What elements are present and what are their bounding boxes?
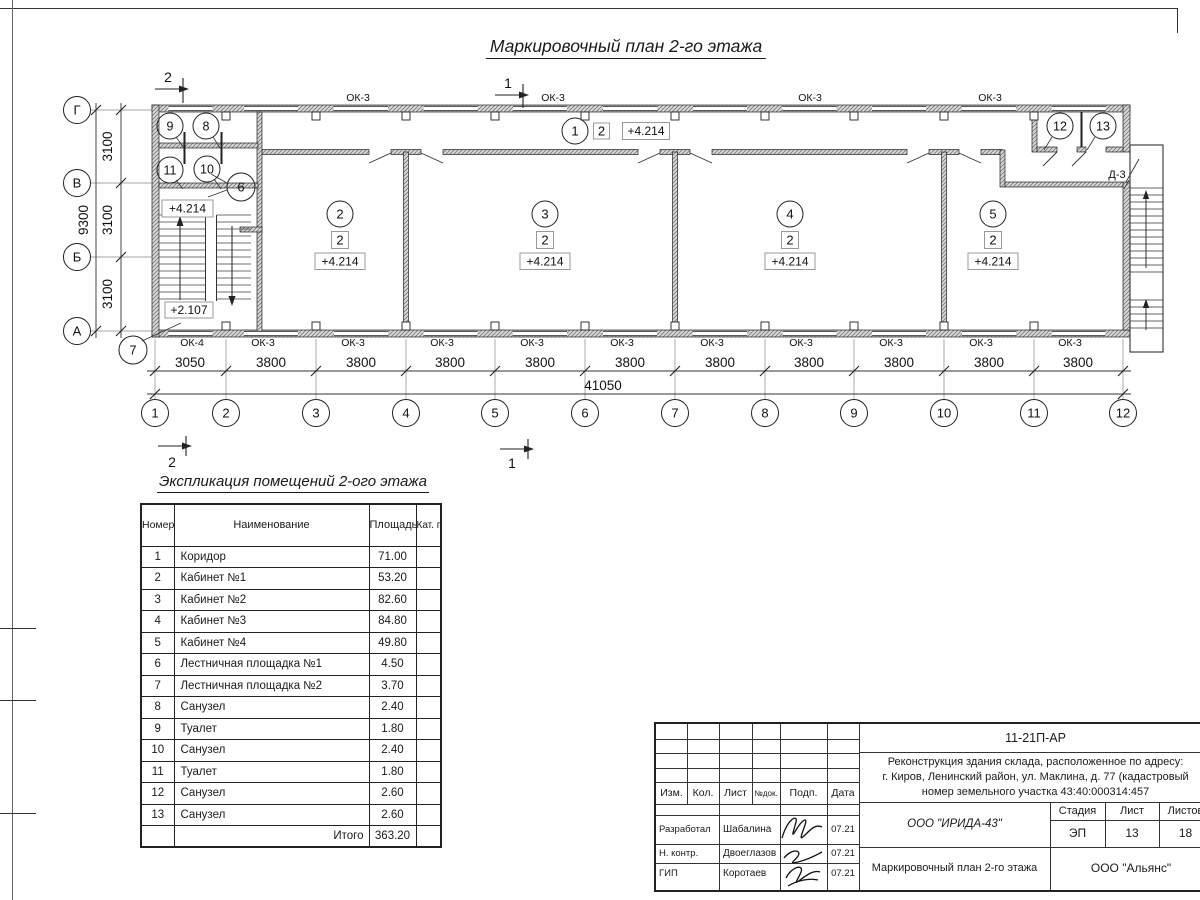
org-name: ООО "ИРИДА-43" — [859, 802, 1050, 847]
room-1-num: 1 — [571, 124, 578, 139]
explication-table: Номер помещ. Наименование Площадь Кат. п… — [140, 503, 442, 848]
row-name: Коридор — [174, 546, 369, 568]
row-num: 12 — [141, 783, 174, 805]
dim-h-1: 3800 — [256, 355, 286, 370]
row-cat — [416, 697, 441, 719]
name-gip: Коротаев — [723, 863, 780, 883]
room-5-cat: 2 — [989, 233, 996, 248]
sheet-label: Лист — [1105, 802, 1159, 820]
row-area: 84.80 — [369, 611, 416, 633]
sheet-number: 13 — [1105, 820, 1159, 847]
room-4-elev: +4.214 — [771, 255, 808, 269]
total-empty — [141, 826, 174, 848]
row-cat — [416, 611, 441, 633]
axis-9: 9 — [850, 406, 857, 421]
dim-v-1: 3100 — [100, 205, 115, 235]
room-2-cat: 2 — [336, 233, 343, 248]
dim-h-0: 3050 — [175, 355, 205, 370]
table-row: 12Санузел2.60 — [141, 783, 441, 805]
table-row: 10Санузел2.40 — [141, 740, 441, 762]
callout-leaders — [142, 137, 1129, 341]
sheet-name: Маркировочный план 2-го этажа — [859, 847, 1050, 890]
win-top-3: ОК-3 — [978, 92, 1002, 104]
row-area: 3.70 — [369, 675, 416, 697]
room-11-num: 11 — [164, 164, 177, 178]
col-header-area: Площадь — [369, 504, 416, 546]
dim-h-4: 3800 — [525, 355, 555, 370]
room-13-num: 13 — [1096, 120, 1110, 134]
row-num: 6 — [141, 654, 174, 676]
axis-v: В — [73, 176, 82, 191]
table-row: 1Коридор71.00 — [141, 546, 441, 568]
dim-v-total: 9300 — [76, 205, 91, 235]
row-name: Санузел — [174, 697, 369, 719]
dim-h-6: 3800 — [705, 355, 735, 370]
room-4-cat: 2 — [786, 233, 793, 248]
room-5-num: 5 — [989, 207, 996, 222]
firm-name: ООО "Альянс" — [1050, 847, 1200, 890]
frame-tick-2 — [0, 700, 36, 701]
room-7-num: 7 — [129, 343, 136, 358]
axis-1: 1 — [151, 406, 158, 421]
sheets-label: Листов — [1159, 802, 1200, 820]
row-num: 11 — [141, 761, 174, 783]
win-bot-4: ОК-3 — [520, 337, 544, 349]
section-mark-1-top: 1 — [504, 75, 512, 91]
row-name: Кабинет №2 — [174, 589, 369, 611]
win-bot-10: ОК-3 — [1058, 337, 1082, 349]
row-num: 13 — [141, 804, 174, 826]
room-2-elev: +4.214 — [321, 255, 358, 269]
row-cat — [416, 740, 441, 762]
axis-11: 11 — [1027, 406, 1041, 421]
row-name: Туалет — [174, 761, 369, 783]
table-row: 9Туалет1.80 — [141, 718, 441, 740]
row-cat — [416, 589, 441, 611]
room-1-cat: 2 — [598, 124, 605, 139]
win-bot-2: ОК-3 — [341, 337, 365, 349]
section-mark-2-top: 2 — [164, 69, 172, 85]
project-description: Реконструкция здания склада, расположенн… — [859, 752, 1200, 802]
row-cat — [416, 761, 441, 783]
col-header-name: Наименование — [174, 504, 369, 546]
axis-b: Б — [73, 250, 82, 265]
frame-tick-3 — [0, 813, 36, 814]
row-num: 5 — [141, 632, 174, 654]
external-stair — [1130, 145, 1163, 352]
win-bot-5: ОК-3 — [610, 337, 634, 349]
name-ncontrol: Двоеглазов — [723, 844, 780, 863]
row-num: 10 — [141, 740, 174, 762]
axis-4: 4 — [402, 406, 409, 421]
row-area: 1.80 — [369, 718, 416, 740]
col-podp: Подп. — [780, 782, 827, 804]
axis-8: 8 — [761, 406, 768, 421]
windows — [169, 106, 1106, 335]
project-line-2: г. Киров, Ленинский район, ул. Маклина, … — [859, 770, 1200, 785]
axis-12: 12 — [1116, 406, 1130, 421]
axis-3: 3 — [312, 406, 319, 421]
win-bot-9: ОК-3 — [969, 337, 993, 349]
table-title: Экспликация помещений 2-ого этажа — [157, 473, 429, 493]
table-row: 4Кабинет №384.80 — [141, 611, 441, 633]
signature-developer — [778, 810, 830, 846]
axis-a: А — [73, 324, 82, 339]
room-9-num: 9 — [167, 120, 174, 134]
row-cat — [416, 718, 441, 740]
internal-stair — [159, 214, 251, 306]
win-top-1: ОК-3 — [541, 92, 565, 104]
row-num: 7 — [141, 675, 174, 697]
row-num: 4 — [141, 611, 174, 633]
row-name: Лестничная площадка №1 — [174, 654, 369, 676]
col-list: Лист — [719, 782, 752, 804]
row-name: Лестничная площадка №2 — [174, 675, 369, 697]
room-3-elev: +4.214 — [526, 255, 563, 269]
row-cat — [416, 783, 441, 805]
row-name: Санузел — [174, 783, 369, 805]
landing-elev: +4.214 — [169, 202, 206, 216]
room-12-num: 12 — [1053, 120, 1067, 134]
axis-6: 6 — [581, 406, 588, 421]
row-name: Санузел — [174, 804, 369, 826]
date-gip: 07.21 — [827, 863, 859, 883]
row-num: 2 — [141, 568, 174, 590]
role-ncontrol: Н. контр. — [659, 844, 719, 863]
stair-elev: +2.107 — [170, 303, 207, 317]
total-label: Итого — [174, 826, 369, 848]
win-bot-0: ОК-4 — [180, 337, 204, 349]
stage-label: Стадия — [1050, 802, 1105, 820]
table-row: 11Туалет1.80 — [141, 761, 441, 783]
axis-5: 5 — [491, 406, 498, 421]
win-top-0: ОК-3 — [346, 92, 370, 104]
column-marks — [222, 112, 1038, 330]
date-developer: 07.21 — [827, 815, 859, 844]
dim-h-9: 3800 — [974, 355, 1004, 370]
row-area: 2.60 — [369, 783, 416, 805]
room-3-cat: 2 — [541, 233, 548, 248]
stage-value: ЭП — [1050, 820, 1105, 847]
row-area: 2.40 — [369, 740, 416, 762]
dim-v-2: 3100 — [100, 279, 115, 309]
col-data: Дата — [827, 782, 859, 804]
door-label-d3: Д-3 — [1108, 169, 1125, 181]
dim-h-10: 3800 — [1063, 355, 1093, 370]
total-value: 363.20 — [369, 826, 416, 848]
room-3-num: 3 — [541, 207, 548, 222]
frame-tick-1 — [0, 628, 36, 629]
col-ndok: №док. — [752, 782, 780, 804]
row-cat — [416, 632, 441, 654]
table-row: 6Лестничная площадка №14.50 — [141, 654, 441, 676]
col-header-cat: Кат. пом. — [416, 504, 441, 546]
drawing-sheet: { "sheet": { "plan_title": "Маркировочны… — [0, 0, 1200, 900]
row-name: Кабинет №3 — [174, 611, 369, 633]
room-6-num: 6 — [237, 180, 244, 195]
win-bot-3: ОК-3 — [430, 337, 454, 349]
dimensions-bottom: 3050 3800 3800 3800 3800 3800 3800 3800 … — [142, 339, 1137, 427]
table-row: 8Санузел2.40 — [141, 697, 441, 719]
total-cat-empty — [416, 826, 441, 848]
row-cat — [416, 675, 441, 697]
row-num: 1 — [141, 546, 174, 568]
room-10-num: 10 — [200, 163, 214, 177]
row-cat — [416, 654, 441, 676]
table-row: 2Кабинет №153.20 — [141, 568, 441, 590]
axis-g: Г — [73, 103, 80, 118]
row-name: Туалет — [174, 718, 369, 740]
title-block: Изм. Кол. Лист №док. Подп. Дата Разработ… — [654, 722, 1200, 892]
table-row: 7Лестничная площадка №23.70 — [141, 675, 441, 697]
dim-h-total: 41050 — [584, 378, 622, 393]
row-area: 2.60 — [369, 804, 416, 826]
row-num: 3 — [141, 589, 174, 611]
win-bot-8: ОК-3 — [879, 337, 903, 349]
row-name: Санузел — [174, 740, 369, 762]
row-area: 71.00 — [369, 546, 416, 568]
floor-plan-drawing: 3050 3800 3800 3800 3800 3800 3800 3800 … — [0, 0, 1200, 470]
row-cat — [416, 804, 441, 826]
row-cat — [416, 546, 441, 568]
axis-2: 2 — [222, 406, 229, 421]
row-area: 1.80 — [369, 761, 416, 783]
dim-h-7: 3800 — [794, 355, 824, 370]
room-8-num: 8 — [203, 120, 210, 134]
row-num: 8 — [141, 697, 174, 719]
signature-gip — [778, 844, 830, 890]
role-gip: ГИП — [659, 863, 719, 883]
win-bot-6: ОК-3 — [700, 337, 724, 349]
row-name: Кабинет №4 — [174, 632, 369, 654]
row-cat — [416, 568, 441, 590]
row-area: 4.50 — [369, 654, 416, 676]
project-line-3: номер земельного участка 43:40:000314:45… — [859, 785, 1200, 800]
dim-h-2: 3800 — [346, 355, 376, 370]
win-bot-1: ОК-3 — [251, 337, 275, 349]
row-area: 53.20 — [369, 568, 416, 590]
row-name: Кабинет №1 — [174, 568, 369, 590]
date-ncontrol: 07.21 — [827, 844, 859, 863]
win-bot-7: ОК-3 — [789, 337, 813, 349]
table-row: 3Кабинет №282.60 — [141, 589, 441, 611]
row-area: 2.40 — [369, 697, 416, 719]
table-row: 13Санузел2.60 — [141, 804, 441, 826]
table-row: 5Кабинет №449.80 — [141, 632, 441, 654]
room-5-elev: +4.214 — [974, 255, 1011, 269]
dimensions-left: 3100 3100 3100 9300 Г В Б А — [64, 97, 153, 345]
dim-h-5: 3800 — [615, 355, 645, 370]
axis-10: 10 — [937, 406, 951, 421]
row-num: 9 — [141, 718, 174, 740]
doc-code: 11-21П-АР — [859, 724, 1200, 752]
room-1-elev: +4.214 — [627, 124, 664, 138]
project-line-1: Реконструкция здания склада, расположенн… — [859, 755, 1200, 770]
win-top-2: ОК-3 — [798, 92, 822, 104]
table-total-row: Итого 363.20 — [141, 826, 441, 848]
row-area: 82.60 — [369, 589, 416, 611]
axis-7: 7 — [671, 406, 678, 421]
row-area: 49.80 — [369, 632, 416, 654]
section-mark-1-bottom: 1 — [508, 455, 516, 470]
door-leaves — [369, 152, 1139, 182]
col-izm: Изм. — [656, 782, 687, 804]
room-2-num: 2 — [336, 207, 343, 222]
dim-h-8: 3800 — [884, 355, 914, 370]
sheets-total: 18 — [1159, 820, 1200, 847]
section-mark-2-bottom: 2 — [168, 454, 176, 470]
col-header-num: Номер помещ. — [141, 504, 174, 546]
dim-v-0: 3100 — [100, 131, 115, 161]
role-developer: Разработал — [659, 815, 719, 844]
dim-h-3: 3800 — [435, 355, 465, 370]
name-developer: Шабалина — [723, 815, 780, 844]
room-4-num: 4 — [786, 207, 793, 222]
col-kol: Кол. — [687, 782, 719, 804]
